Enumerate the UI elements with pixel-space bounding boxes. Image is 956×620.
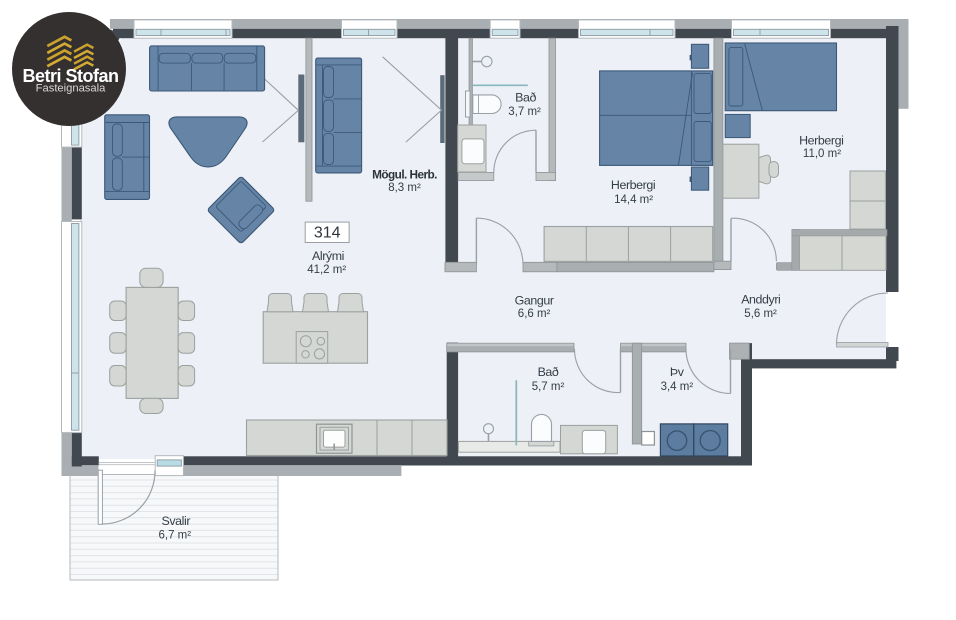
- svg-text:Svalir: Svalir: [162, 514, 191, 528]
- svg-text:8,3 m²: 8,3 m²: [388, 182, 421, 194]
- svg-text:Þv: Þv: [670, 365, 685, 379]
- svg-text:Alrými: Alrými: [312, 249, 344, 263]
- svg-text:6,6 m²: 6,6 m²: [518, 308, 551, 320]
- svg-text:Herbergi: Herbergi: [799, 134, 843, 148]
- svg-text:11,0 m²: 11,0 m²: [803, 148, 841, 160]
- svg-text:Herbergi: Herbergi: [611, 178, 655, 192]
- svg-text:5,6 m²: 5,6 m²: [744, 308, 777, 320]
- svg-text:14,4 m²: 14,4 m²: [614, 194, 653, 206]
- svg-text:Bað: Bað: [538, 365, 559, 379]
- svg-text:Fasteignasala: Fasteignasala: [36, 83, 106, 95]
- svg-text:Mögul. Herb.: Mögul. Herb.: [372, 168, 437, 182]
- svg-text:Anddyri: Anddyri: [741, 293, 780, 307]
- svg-text:Bað: Bað: [515, 91, 536, 105]
- svg-text:314: 314: [314, 225, 341, 242]
- svg-text:3,4 m²: 3,4 m²: [661, 381, 694, 393]
- svg-text:6,7 m²: 6,7 m²: [159, 529, 192, 541]
- svg-text:Gangur: Gangur: [515, 294, 554, 308]
- svg-text:41,2 m²: 41,2 m²: [307, 264, 346, 276]
- svg-text:3,7 m²: 3,7 m²: [508, 106, 541, 118]
- svg-text:5,7 m²: 5,7 m²: [532, 381, 565, 393]
